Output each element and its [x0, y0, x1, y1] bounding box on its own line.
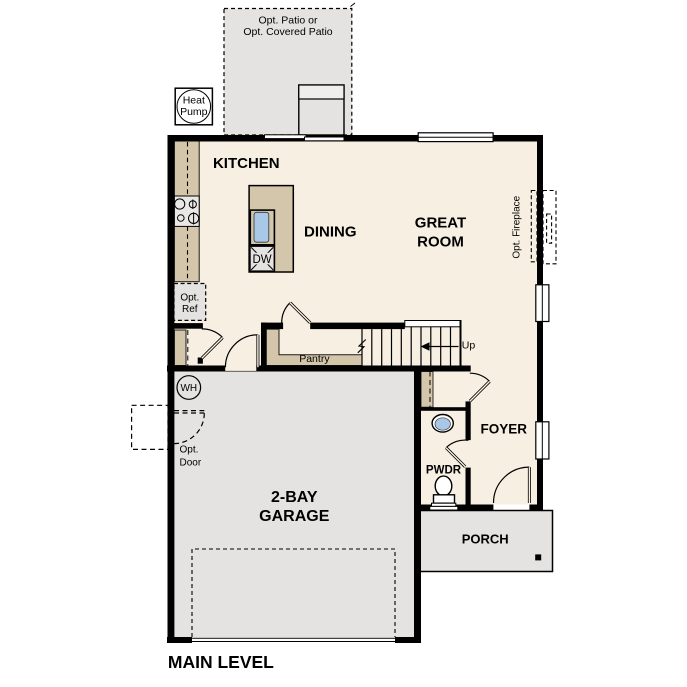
svg-text:KITCHEN: KITCHEN [213, 155, 280, 172]
svg-text:Opt.: Opt. [180, 292, 199, 303]
svg-text:WH: WH [180, 383, 197, 394]
svg-text:MAIN LEVEL: MAIN LEVEL [168, 652, 274, 672]
svg-text:DW: DW [253, 254, 272, 266]
svg-text:GARAGE: GARAGE [259, 508, 330, 525]
svg-text:Pump: Pump [180, 106, 208, 118]
svg-text:2-BAY: 2-BAY [271, 489, 318, 506]
svg-text:Opt.: Opt. [180, 445, 199, 456]
svg-text:DINING: DINING [304, 224, 357, 241]
svg-text:ROOM: ROOM [417, 234, 464, 251]
svg-text:PORCH: PORCH [462, 532, 509, 547]
svg-text:Opt. Fireplace: Opt. Fireplace [511, 195, 522, 258]
svg-text:Ref: Ref [182, 304, 198, 315]
svg-text:Pantry: Pantry [299, 353, 330, 365]
svg-text:Opt. Covered Patio: Opt. Covered Patio [243, 26, 332, 38]
svg-text:PWDR: PWDR [426, 465, 462, 477]
svg-text:Opt. Patio or: Opt. Patio or [259, 14, 318, 26]
svg-text:FOYER: FOYER [481, 421, 528, 436]
svg-text:Up: Up [462, 340, 476, 352]
svg-text:Heat: Heat [183, 94, 205, 106]
svg-text:GREAT: GREAT [415, 215, 466, 232]
svg-text:Door: Door [180, 458, 202, 469]
